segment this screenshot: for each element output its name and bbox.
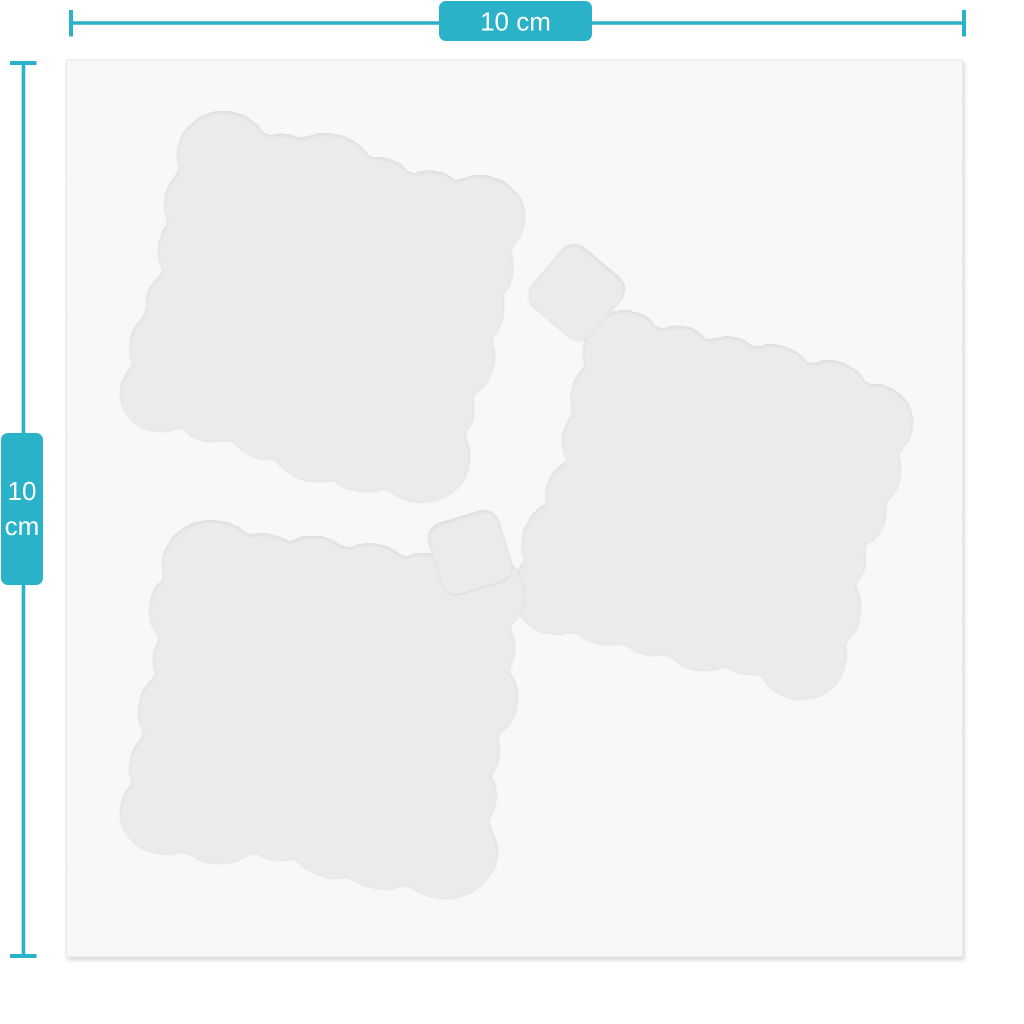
svg-text:cm: cm [5,511,40,541]
svg-text:10: 10 [8,476,37,506]
svg-text:10 cm: 10 cm [480,7,551,37]
